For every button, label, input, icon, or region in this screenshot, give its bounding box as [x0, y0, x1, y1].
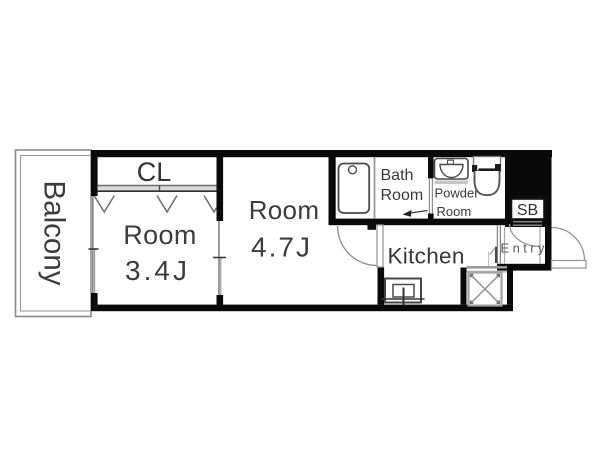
svg-text:Powder: Powder	[435, 186, 480, 201]
svg-text:Room: Room	[381, 187, 424, 204]
svg-text:3.4J: 3.4J	[125, 255, 190, 286]
svg-text:Room: Room	[249, 195, 320, 225]
svg-text:Kitchen: Kitchen	[388, 244, 465, 269]
svg-text:SB: SB	[517, 202, 538, 219]
svg-text:Balcony: Balcony	[38, 181, 71, 286]
svg-text:Room: Room	[437, 204, 472, 219]
svg-text:4.7J: 4.7J	[251, 232, 312, 263]
svg-text:Entry: Entry	[501, 241, 548, 256]
svg-text:Room: Room	[123, 220, 197, 250]
svg-text:Bath: Bath	[381, 167, 414, 184]
svg-text:CL: CL	[137, 157, 172, 187]
